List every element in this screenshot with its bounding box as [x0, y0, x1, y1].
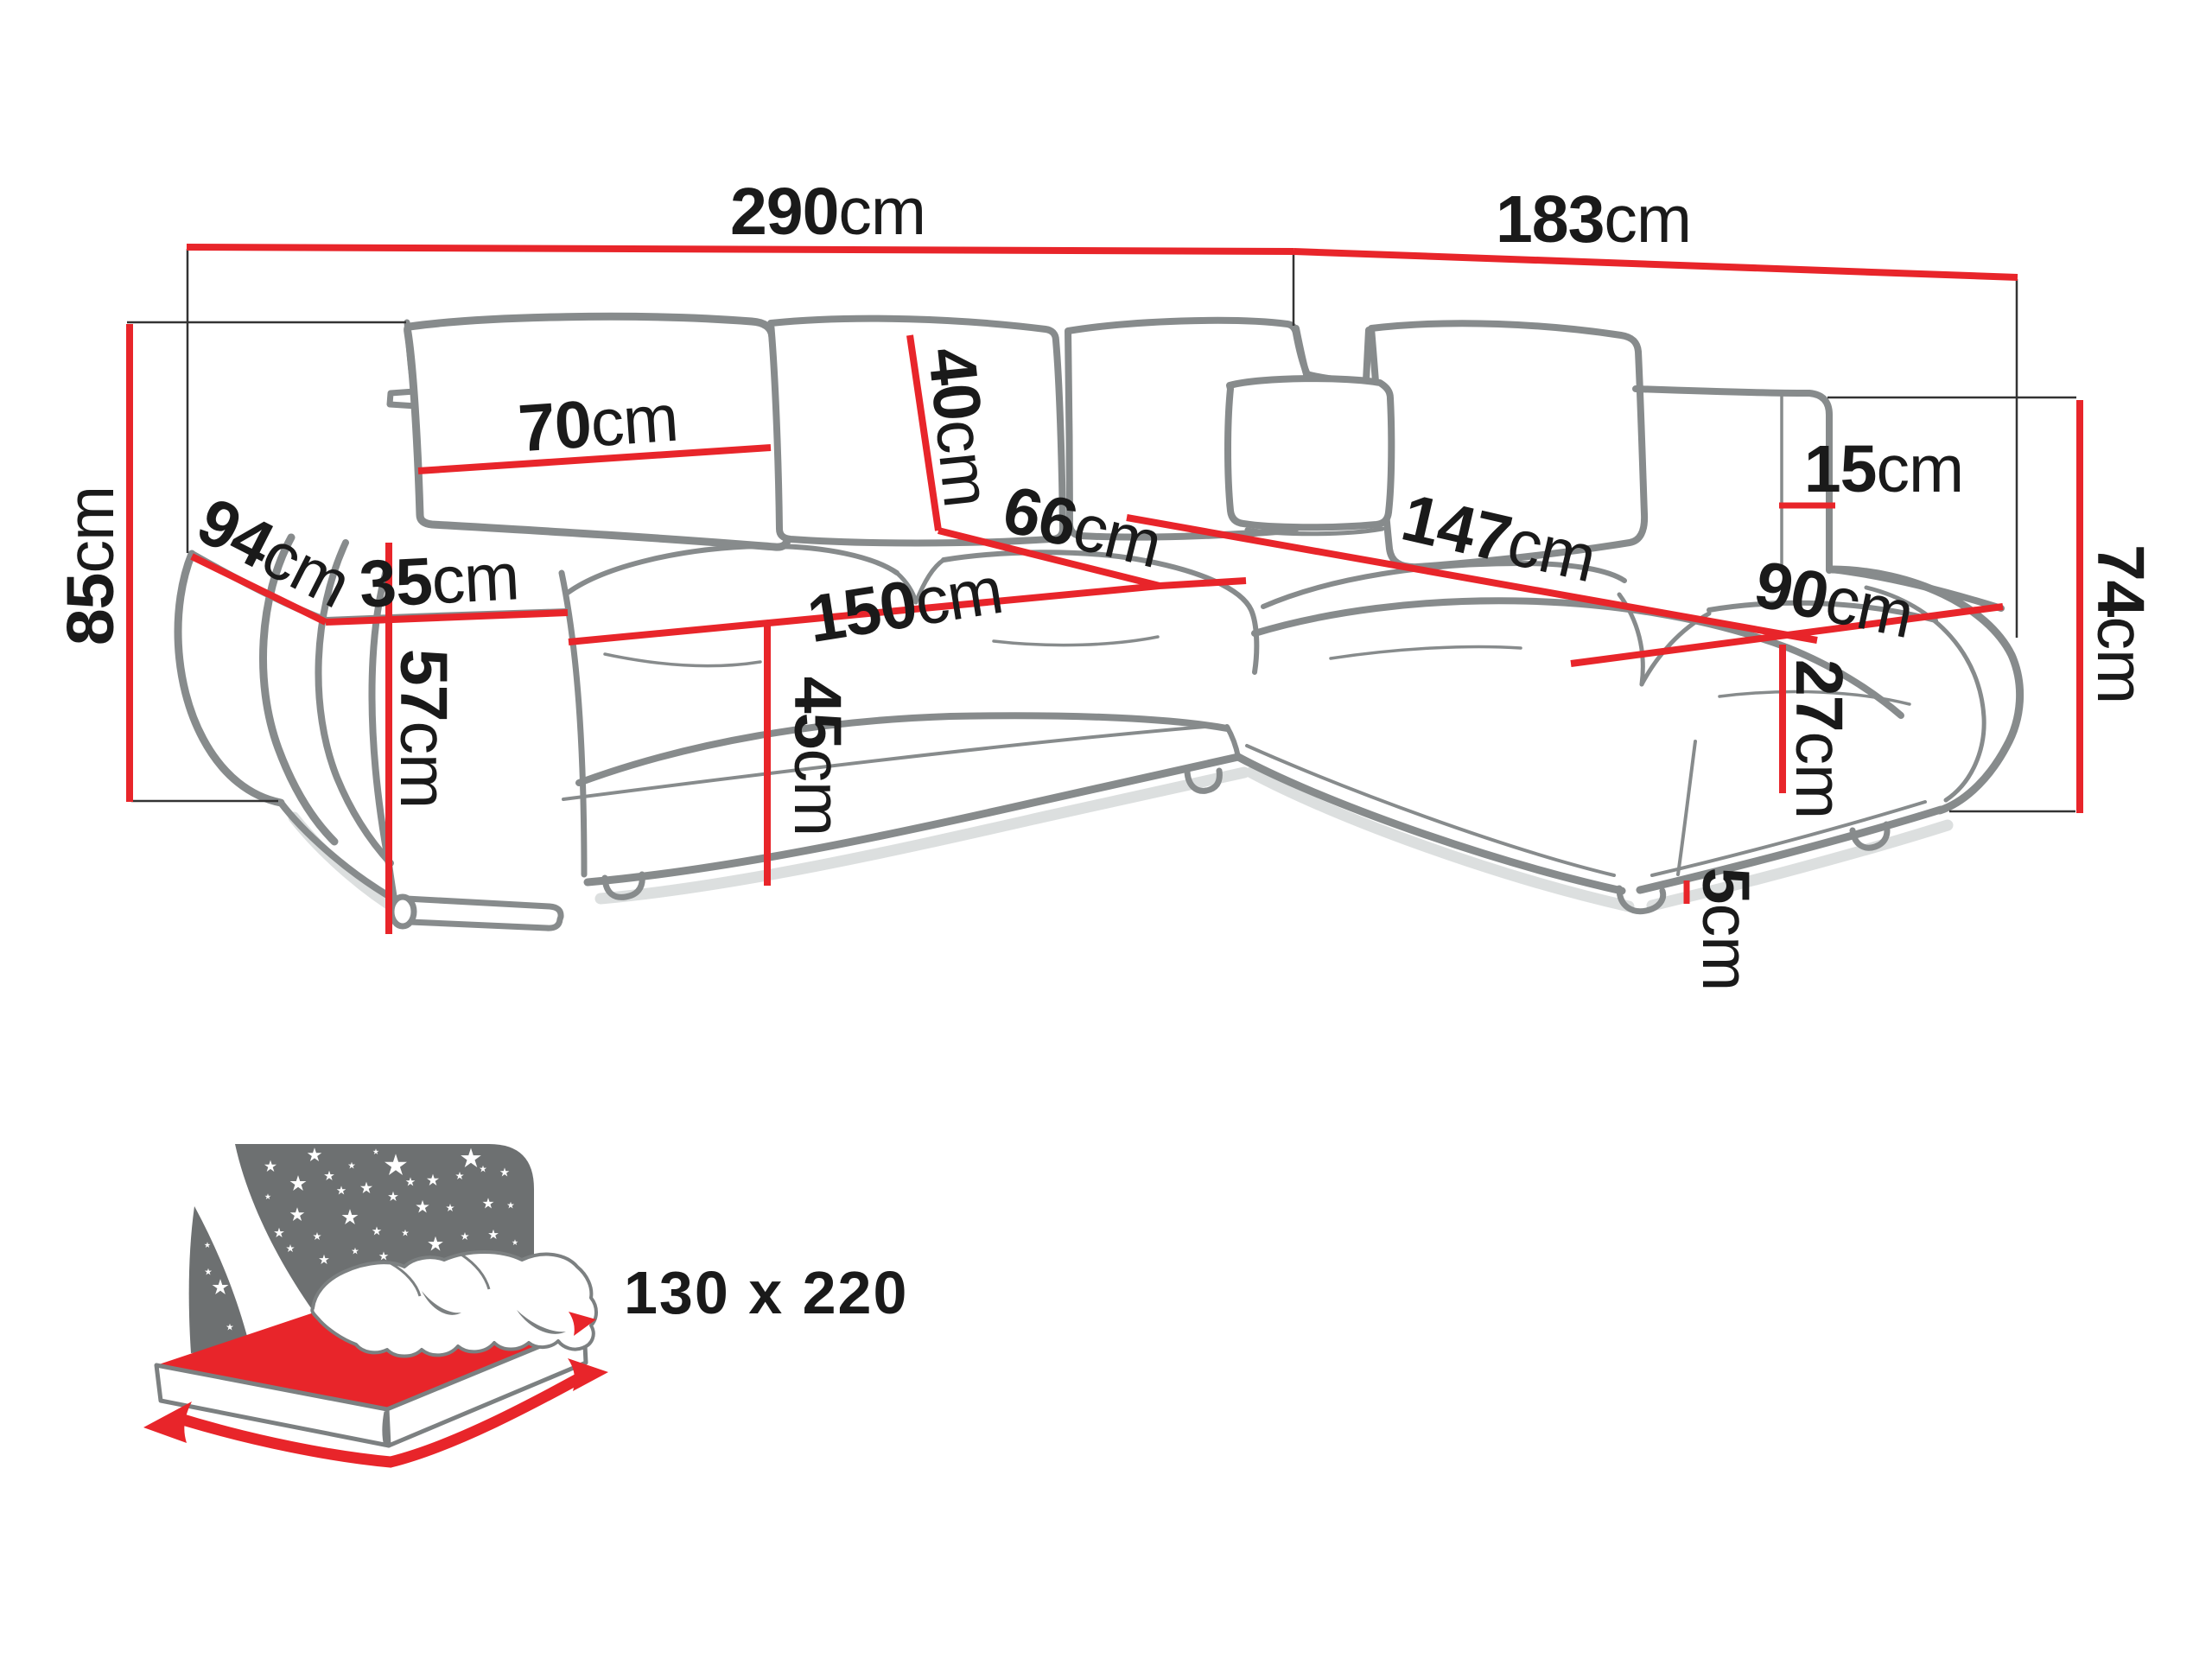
svg-text:70cm: 70cm	[516, 381, 680, 467]
svg-text:35cm: 35cm	[358, 539, 521, 622]
svg-text:290cm: 290cm	[730, 175, 925, 249]
svg-text:74cm: 74cm	[2083, 544, 2158, 703]
svg-text:5cm: 5cm	[1688, 868, 1763, 990]
svg-text:45cm: 45cm	[780, 677, 855, 836]
svg-text:27cm: 27cm	[1782, 659, 1856, 818]
svg-text:130 x 220: 130 x 220	[624, 1259, 908, 1326]
svg-text:85cm: 85cm	[54, 486, 128, 645]
svg-text:15cm: 15cm	[1804, 432, 1963, 506]
svg-text:183cm: 183cm	[1496, 182, 1691, 257]
svg-text:57cm: 57cm	[386, 649, 461, 808]
